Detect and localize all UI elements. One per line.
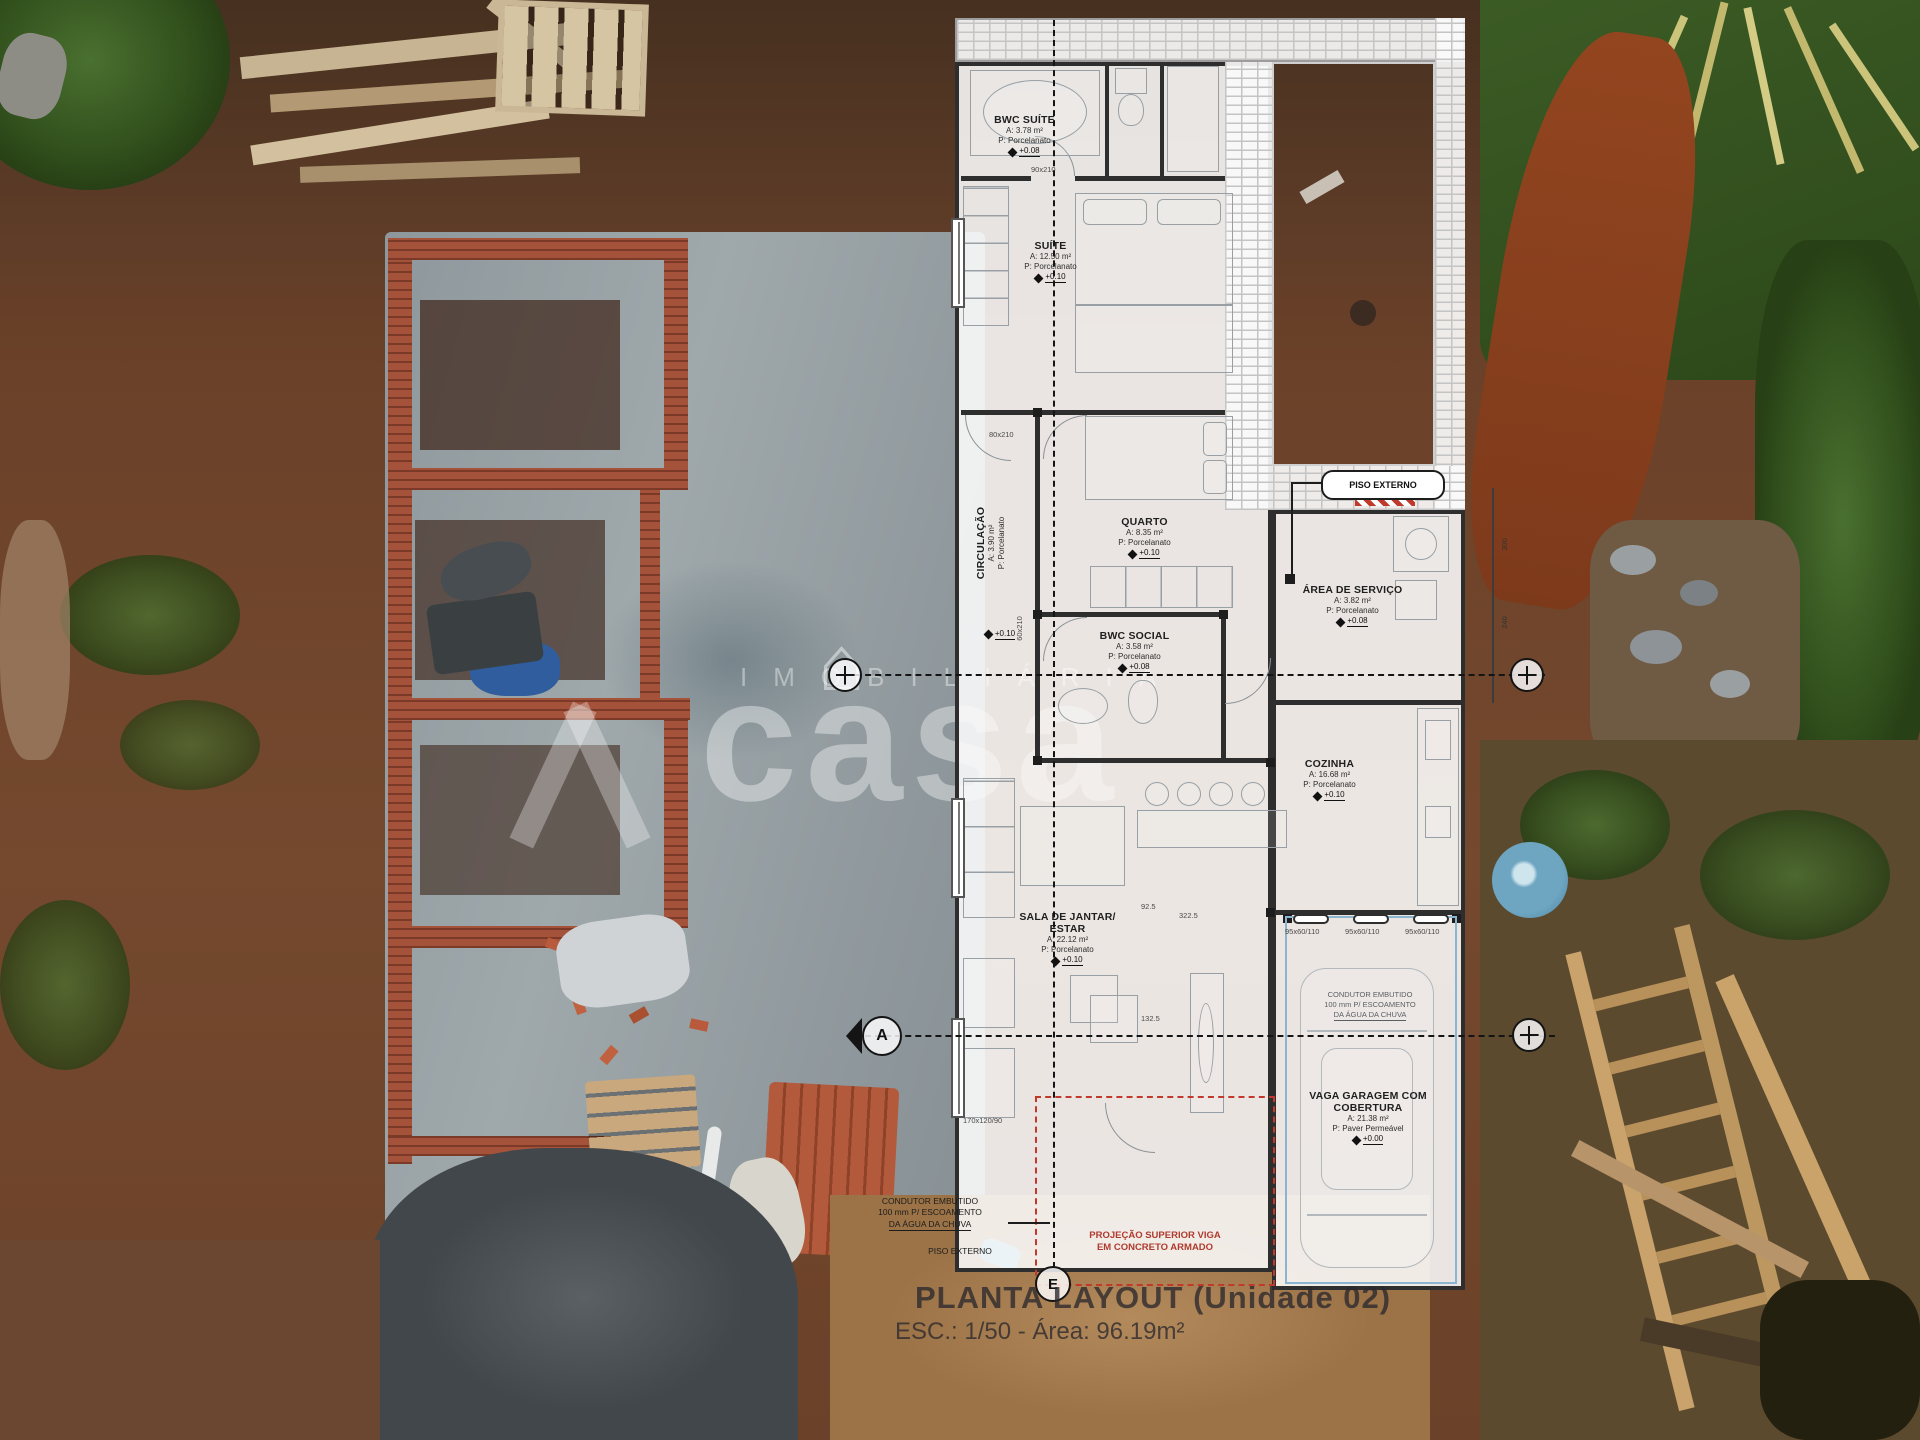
- condutor-note-garage: CONDUTOR EMBUTIDO 100 mm P/ ESCOAMENTO D…: [1295, 990, 1445, 1021]
- blue-bucket: [1492, 842, 1568, 918]
- wall: [1160, 62, 1164, 176]
- level-diamond-icon: [1336, 617, 1346, 627]
- hatch-band-right: [1435, 18, 1465, 510]
- brick-piece: [599, 1045, 618, 1065]
- ladder-rung: [1624, 1103, 1720, 1138]
- section-marker-a: A: [862, 1016, 902, 1056]
- hatch-band-top: [955, 18, 1465, 62]
- rocky-area: [1590, 520, 1800, 770]
- window: [951, 1018, 965, 1118]
- column: [1219, 610, 1228, 619]
- brick-wall: [388, 698, 690, 720]
- room-label-circulacao-level: +0.10: [965, 628, 1035, 640]
- armchair: [963, 1048, 1015, 1118]
- dim-1325: 132.5: [1141, 1014, 1160, 1023]
- grass-blade: [1784, 6, 1865, 174]
- pillow: [1083, 199, 1147, 225]
- level-diamond-icon: [1128, 549, 1138, 559]
- shadow-corner: [1760, 1280, 1920, 1440]
- pillow: [1203, 422, 1227, 456]
- brick-wall: [664, 260, 688, 470]
- stool: [1145, 782, 1169, 806]
- ladder-rung: [1672, 1292, 1768, 1327]
- column: [1266, 908, 1275, 917]
- dim-door-bwc-social: 60x210: [1015, 616, 1024, 641]
- toilet: [1128, 680, 1158, 724]
- kitchen-sink: [1425, 720, 1451, 760]
- level-diamond-icon: [1313, 791, 1323, 801]
- plan-scale: ESC.: 1/50 - Área: 96.19m²: [895, 1318, 1184, 1346]
- dining-table: [1020, 806, 1125, 886]
- column: [1266, 758, 1275, 767]
- callout-leader-v: [1291, 482, 1293, 578]
- shower: [1167, 66, 1219, 172]
- brick-wall: [640, 490, 660, 702]
- sink-oval: [1058, 688, 1108, 724]
- toilet-bowl: [1118, 94, 1144, 126]
- brick-piece: [689, 1018, 709, 1032]
- brick-wall: [664, 720, 688, 928]
- dim-door-bwc-suite: 90x210: [1031, 165, 1056, 174]
- piso-externo-note-bottom: PISO EXTERNO: [905, 1246, 1015, 1257]
- stool: [1241, 782, 1265, 806]
- dim-sala-window: 170x120/90: [963, 1116, 1002, 1125]
- piso-externo-label: PISO EXTERNO: [1349, 480, 1417, 490]
- dim-garage-window: 95x60/110: [1285, 927, 1319, 936]
- window: [951, 218, 965, 308]
- dirt-bottom-left: [0, 1240, 380, 1440]
- callout-leader-h: [1291, 482, 1321, 484]
- washer-drum: [1405, 528, 1437, 560]
- brick-piece: [629, 1006, 650, 1024]
- stone: [1710, 670, 1750, 698]
- wall: [1035, 410, 1040, 763]
- room-label-cozinha: COZINHA A: 16.68 m² P: Porcelanato +0.10: [1277, 758, 1382, 801]
- grass-blade: [1743, 7, 1784, 165]
- ladder-rung: [1593, 977, 1689, 1012]
- callout-terminal: [1285, 574, 1295, 584]
- column: [1033, 756, 1042, 765]
- grass-patch: [60, 555, 240, 675]
- stone: [1610, 545, 1656, 575]
- condutor-leader: [1008, 1222, 1050, 1224]
- floor-plan-overlay: E PISO EXTERNO BWC SUÍTE A: 3.78 m² P: P…: [955, 18, 1465, 1290]
- dim-garage-window: 95x60/110: [1405, 927, 1439, 936]
- garage-window: [1353, 914, 1389, 924]
- dim-240: 240: [1500, 616, 1509, 629]
- garage-window: [1413, 914, 1449, 924]
- dim-chain-line: [1492, 488, 1494, 703]
- aerial-construction-photo: ⌂ IMOBILIÁRIA casa: [0, 0, 1920, 1440]
- wall: [1272, 700, 1465, 705]
- sofa: [963, 778, 1015, 918]
- room-interior-shadow: [420, 300, 620, 450]
- ladder-rung: [1609, 1040, 1705, 1075]
- room-label-suite: SUÍTE A: 12.50 m² P: Porcelanato +0.10: [993, 240, 1108, 283]
- wall: [961, 176, 1031, 181]
- brick-wall: [388, 238, 688, 260]
- section-target-right-1: [1510, 658, 1544, 692]
- room-label-bwc-social: BWC SOCIAL A: 3.58 m² P: Porcelanato +0.…: [1077, 630, 1192, 673]
- wall: [1035, 612, 1225, 617]
- level-diamond-icon: [1034, 273, 1044, 283]
- stone: [1680, 580, 1718, 606]
- section-target-left-1: [828, 658, 862, 692]
- room-label-quarto: QUARTO A: 8.35 m² P: Porcelanato +0.10: [1087, 516, 1202, 559]
- plank: [300, 157, 580, 183]
- bed-fold-line: [1075, 304, 1233, 306]
- section-line-vertical: [1053, 20, 1055, 1268]
- room-label-circulacao: CIRCULAÇÃO A: 3.90 m² P: Porcelanato: [975, 468, 1015, 618]
- dim-garage-window: 95x60/110: [1345, 927, 1379, 936]
- brick-wall: [388, 468, 688, 490]
- piso-externo-callout: PISO EXTERNO: [1321, 470, 1445, 500]
- beam-projection-outline: [1035, 1096, 1275, 1286]
- pallet: [495, 0, 649, 117]
- stove: [1425, 806, 1451, 838]
- room-label-sala: SALA DE JANTAR/ ESTAR A: 22.12 m² P: Por…: [1010, 911, 1125, 966]
- column: [1033, 408, 1042, 417]
- courtyard-opening: [1272, 62, 1435, 466]
- section-target-right-2: [1512, 1018, 1546, 1052]
- stone: [1630, 630, 1682, 664]
- section-marker-a-label: A: [876, 1027, 888, 1045]
- pillow: [1157, 199, 1221, 225]
- toilet: [1115, 68, 1147, 94]
- wardrobe-quarto: [1090, 566, 1233, 608]
- room-label-area-servico: ÁREA DE SERVIÇO A: 3.82 m² P: Porcelanat…: [1285, 584, 1420, 627]
- column: [1033, 610, 1042, 619]
- stool: [1177, 782, 1201, 806]
- wall: [1035, 758, 1272, 763]
- section-line-2: [865, 1035, 1555, 1037]
- wall: [1105, 62, 1109, 176]
- light-path: [0, 520, 70, 760]
- window: [951, 798, 965, 898]
- room-label-garagem: VAGA GARAGEM COM COBERTURA A: 21.38 m² P…: [1293, 1090, 1443, 1145]
- projecao-note: PROJEÇÃO SUPERIOR VIGA EM CONCRETO ARMAD…: [1050, 1230, 1260, 1255]
- level-diamond-icon: [983, 630, 993, 640]
- section-marker-a-triangle: [846, 1018, 862, 1054]
- dim-door-suite: 80x210: [989, 430, 1014, 439]
- pillow: [1203, 460, 1227, 494]
- section-line-1: [845, 674, 1545, 676]
- level-diamond-icon: [1008, 147, 1018, 157]
- dim-925: 92.5: [1141, 902, 1156, 911]
- condutor-note-left: CONDUTOR EMBUTIDO 100 mm P/ ESCOAMENTO D…: [852, 1196, 1008, 1231]
- armchair: [963, 958, 1015, 1028]
- room-label-bwc-suite: BWC SUÍTE A: 3.78 m² P: Porcelanato +0.0…: [967, 114, 1082, 157]
- island-counter: [1137, 810, 1287, 848]
- plan-title: PLANTA LAYOUT (Unidade 02): [915, 1280, 1391, 1316]
- garage-window: [1293, 914, 1329, 924]
- grass-patch: [120, 700, 260, 790]
- gravel-pile: [368, 1148, 798, 1440]
- tv-screen: [1198, 1003, 1214, 1083]
- wall: [1075, 176, 1225, 181]
- moss-patch: [0, 900, 130, 1070]
- dim-300: 300: [1500, 538, 1509, 551]
- level-diamond-icon: [1351, 1135, 1361, 1145]
- stool: [1209, 782, 1233, 806]
- dim-3225: 322.5: [1179, 911, 1198, 920]
- bush-bottom-right: [1700, 810, 1890, 940]
- level-diamond-icon: [1118, 663, 1128, 673]
